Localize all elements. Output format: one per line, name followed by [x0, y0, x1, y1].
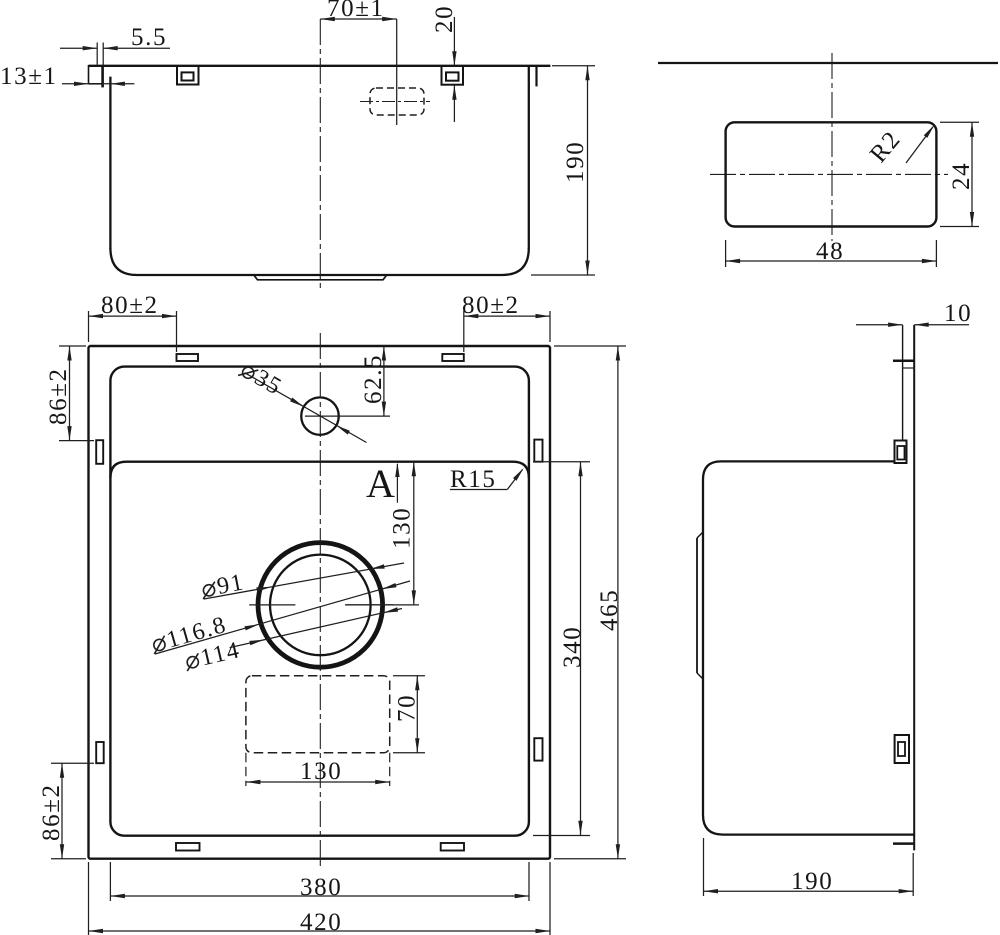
svg-text:80±2: 80±2: [462, 292, 520, 319]
svg-text:130: 130: [300, 758, 342, 785]
svg-text:340: 340: [559, 626, 586, 668]
svg-text:465: 465: [596, 589, 623, 631]
svg-text:24: 24: [948, 162, 975, 190]
svg-text:80±2: 80±2: [101, 292, 159, 319]
svg-text:62.5: 62.5: [360, 354, 387, 404]
svg-text:130: 130: [389, 507, 416, 549]
svg-text:86±2: 86±2: [38, 783, 65, 841]
svg-text:380: 380: [300, 874, 342, 901]
svg-text:86±2: 86±2: [45, 367, 72, 425]
svg-text:13±1: 13±1: [0, 63, 58, 90]
svg-text:91: 91: [215, 569, 247, 600]
svg-text:70: 70: [394, 694, 421, 722]
svg-text:10: 10: [944, 300, 972, 327]
svg-text:190: 190: [562, 141, 589, 183]
svg-text:5.5: 5.5: [131, 24, 167, 51]
svg-text:R2: R2: [865, 126, 906, 168]
svg-text:A: A: [366, 461, 397, 506]
